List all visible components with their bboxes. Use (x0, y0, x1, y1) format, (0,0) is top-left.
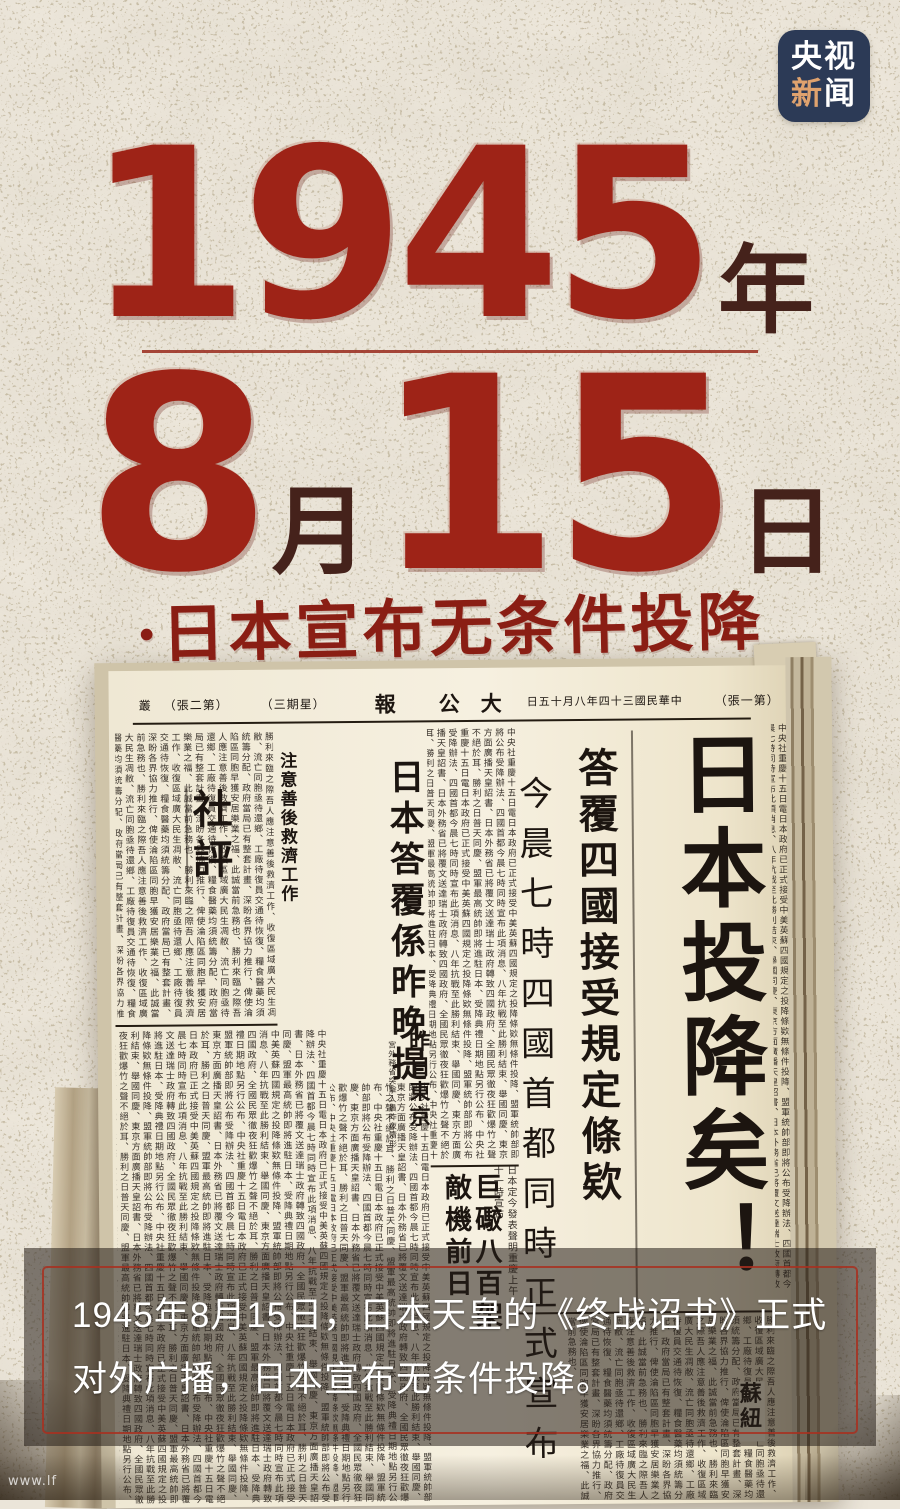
logo-plain-char: 闻 (824, 76, 857, 112)
logo-accent-char: 新 (791, 76, 824, 112)
calligraphy-subtitle: ·日本宣布无条件投降 (0, 569, 900, 679)
day-unit: 日 (739, 484, 835, 580)
poster-canvas: { "poster": { "logo": { "top": "央视", "bo… (0, 0, 900, 1500)
month-number: 8 (85, 342, 263, 610)
watermark: www.lf (8, 1474, 57, 1489)
newspaper-section-rule-left (115, 1024, 277, 1027)
newspaper-editorial-body: 勝利來臨之際吾人應注意善後救濟工作、收復區域廣大民生凋敝、流亡同胞亟待還鄉、工廠… (115, 732, 275, 1019)
day-number: 15 (374, 342, 731, 610)
caption-overlay: 1945年8月15日，日本天皇的《终战诏书》正式 对外广播，日本宣布无条件投降。 (24, 1248, 876, 1446)
caption-line-2: 对外广播，日本宣布无条件投降。 (72, 1348, 846, 1412)
brief-line-1: 日本定今發表聲明 (505, 1165, 517, 1253)
caption-text: 1945年8月15日，日本天皇的《终战诏书》正式 对外广播，日本宣布无条件投降。 (72, 1284, 846, 1412)
month-unit: 月 (272, 484, 368, 580)
masthead-title-char-1: 報 (375, 689, 397, 719)
year-number: 1945 (86, 118, 708, 353)
masthead-date-line: 日五十月八年四十三國民華中 (527, 692, 683, 709)
newspaper-deck-headline: 答覆四國接受規定條欵 (557, 747, 627, 1218)
newspaper-editorial-headline: 注意善後救濟工作 (277, 751, 300, 919)
hero-day-row: 8 月 15 日 (0, 342, 900, 610)
photo-shadow-bottom (0, 1455, 900, 1500)
masthead-title-char-3: 大 (481, 688, 503, 718)
masthead-rule (133, 718, 751, 725)
newspaper-main-headline: 日本投降矣！ (631, 729, 782, 1302)
caption-line-1: 1945年8月15日，日本天皇的《终战诏书》正式 (72, 1284, 846, 1348)
masthead-title-char-2: 公 (439, 688, 461, 718)
masthead-sheet-note: （張二第） (164, 696, 229, 714)
cctv-news-logo: 央视 新闻 (778, 30, 870, 122)
year-unit: 年 (718, 243, 814, 339)
masthead-edge-char: 叢 (139, 697, 152, 714)
masthead-weekday: （三期星） (261, 695, 326, 713)
logo-line-1: 央视 (791, 39, 857, 76)
hero-year-row: 1945 年 (0, 118, 900, 353)
masthead-page-note: （張一第） (715, 691, 780, 709)
logo-line-2: 新闻 (791, 76, 857, 113)
newspaper-body-block-center: 中央社重慶十五日電日本政府已正式接受中美英蘇四國規定之投降條欵無條件投降、盟軍統… (427, 728, 519, 1161)
